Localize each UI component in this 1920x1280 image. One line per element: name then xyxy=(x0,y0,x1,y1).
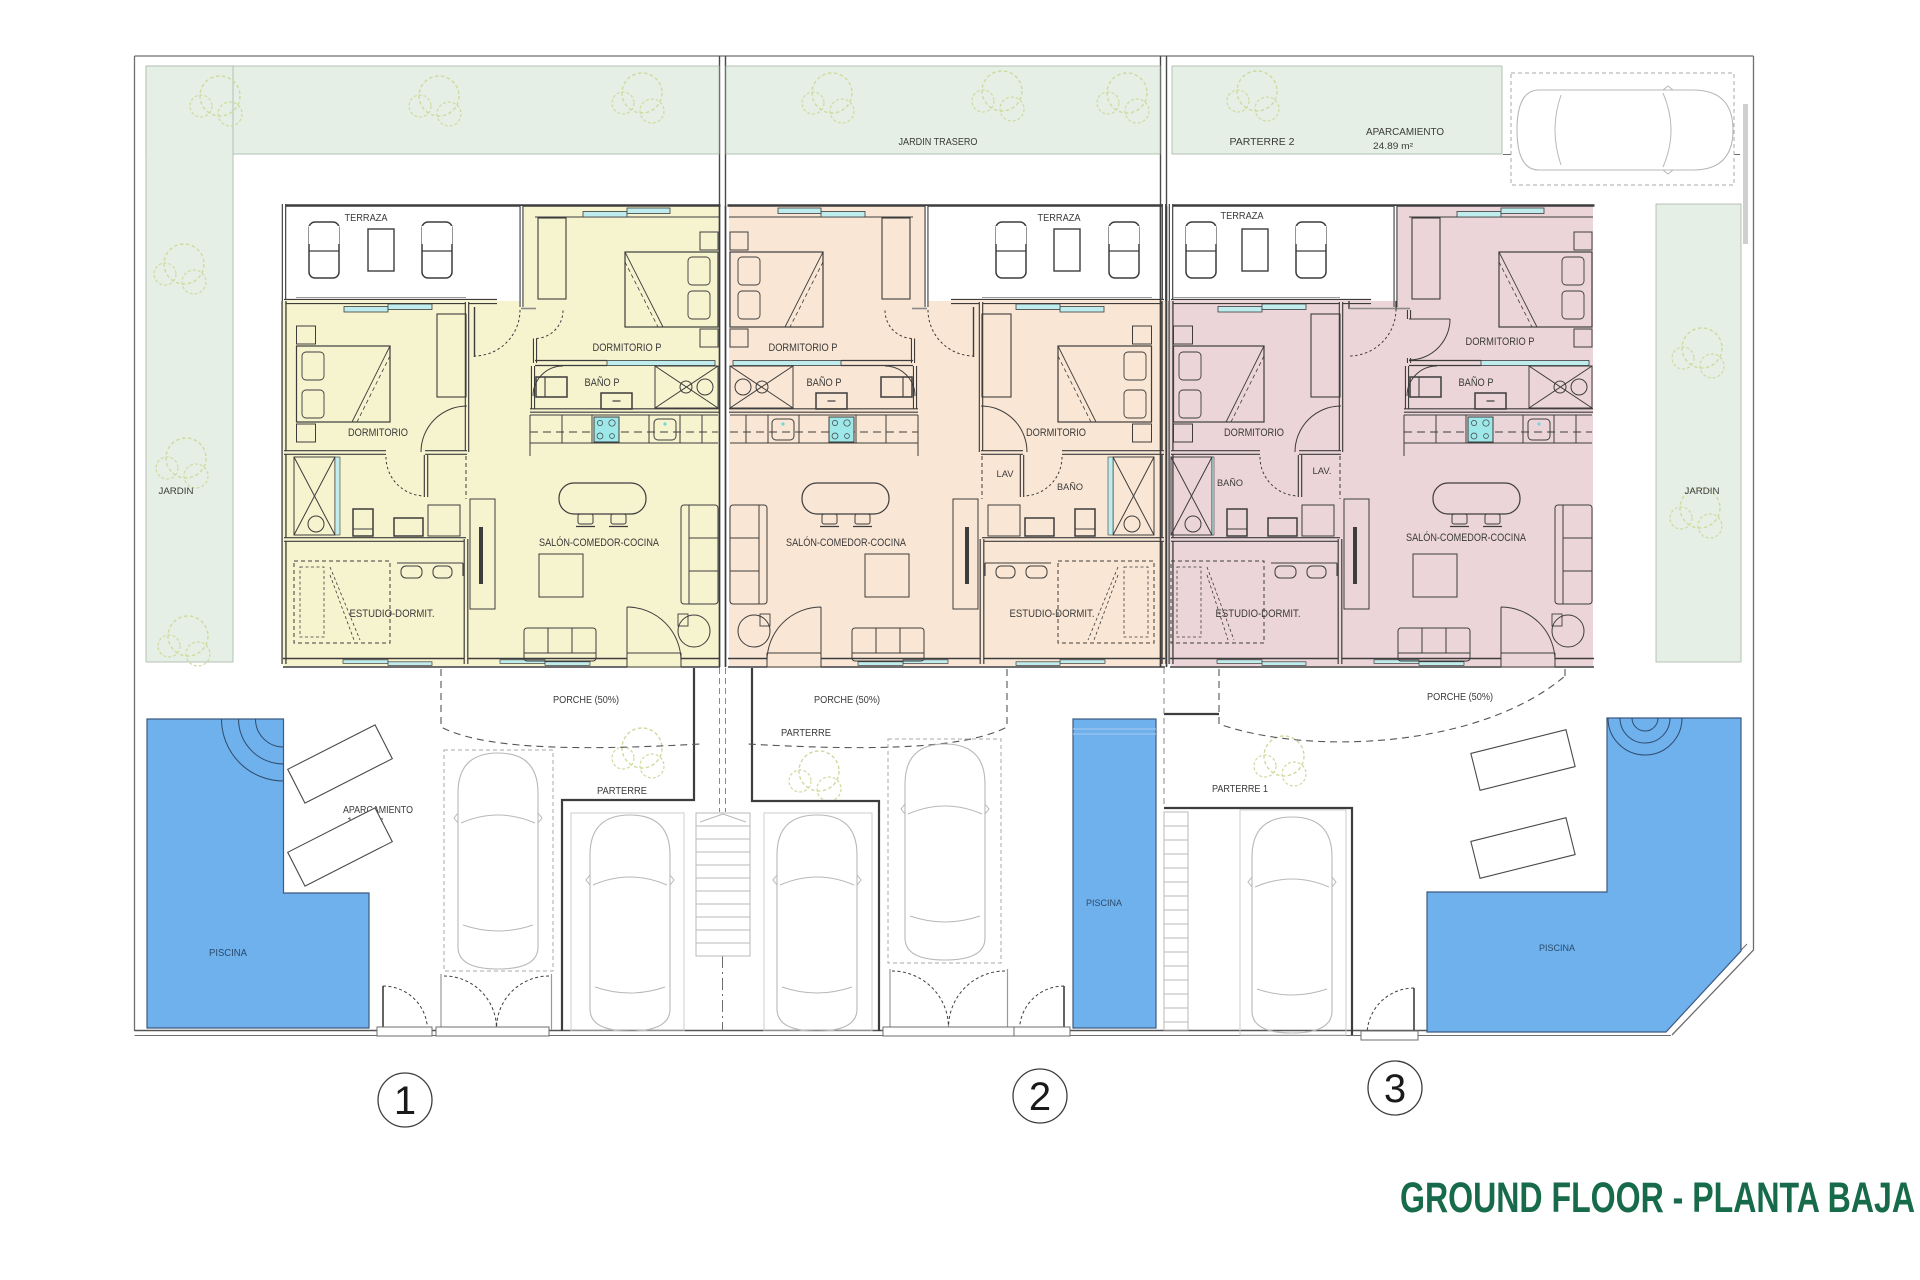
svg-text:BAÑO P: BAÑO P xyxy=(1459,376,1494,389)
svg-text:ESTUDIO-DORMIT.: ESTUDIO-DORMIT. xyxy=(350,608,435,620)
svg-text:DORMITORIO P: DORMITORIO P xyxy=(1466,336,1535,348)
svg-text:DORMITORIO: DORMITORIO xyxy=(1026,427,1086,439)
svg-text:PORCHE (50%): PORCHE (50%) xyxy=(814,695,880,706)
svg-text:TERRAZA: TERRAZA xyxy=(345,213,388,224)
svg-text:PISCINA: PISCINA xyxy=(1086,898,1122,908)
svg-text:BAÑO P: BAÑO P xyxy=(807,376,842,389)
svg-text:2: 2 xyxy=(1029,1075,1051,1119)
svg-text:SALÓN-COMEDOR-COCINA: SALÓN-COMEDOR-COCINA xyxy=(1406,531,1527,544)
svg-text:BAÑO: BAÑO xyxy=(1217,478,1243,488)
svg-text:TERRAZA: TERRAZA xyxy=(1038,213,1081,224)
svg-text:PORCHE (50%): PORCHE (50%) xyxy=(553,695,619,706)
svg-text:1: 1 xyxy=(394,1079,416,1123)
svg-text:TERRAZA: TERRAZA xyxy=(1221,211,1264,222)
svg-text:ESTUDIO-DORMIT.: ESTUDIO-DORMIT. xyxy=(1010,608,1095,620)
svg-text:PARTERRE 2: PARTERRE 2 xyxy=(1230,137,1295,148)
svg-text:JARDIN: JARDIN xyxy=(1685,486,1720,496)
svg-text:3: 3 xyxy=(1384,1067,1406,1111)
svg-text:BAÑO P: BAÑO P xyxy=(585,376,620,389)
svg-text:ESTUDIO-DORMIT.: ESTUDIO-DORMIT. xyxy=(1216,608,1301,620)
svg-text:SALÓN-COMEDOR-COCINA: SALÓN-COMEDOR-COCINA xyxy=(786,536,907,549)
svg-text:PISCINA: PISCINA xyxy=(209,948,247,959)
svg-text:DORMITORIO: DORMITORIO xyxy=(348,427,408,439)
svg-text:PORCHE (50%): PORCHE (50%) xyxy=(1427,692,1493,703)
svg-text:BAÑO: BAÑO xyxy=(1057,482,1083,492)
svg-text:24.89 m²: 24.89 m² xyxy=(1373,141,1413,151)
svg-text:APARCAMIENTO: APARCAMIENTO xyxy=(1366,127,1444,138)
svg-text:PISCINA: PISCINA xyxy=(1539,943,1575,953)
svg-text:JARDIN: JARDIN xyxy=(159,486,194,496)
svg-text:JARDIN TRASERO: JARDIN TRASERO xyxy=(899,137,978,148)
svg-text:SALÓN-COMEDOR-COCINA: SALÓN-COMEDOR-COCINA xyxy=(539,536,660,549)
svg-text:DORMITORIO: DORMITORIO xyxy=(1224,427,1284,439)
svg-text:GROUND FLOOR - PLANTA BAJA: GROUND FLOOR - PLANTA BAJA xyxy=(1400,1174,1915,1222)
svg-text:DORMITORIO P: DORMITORIO P xyxy=(769,342,838,354)
svg-text:DORMITORIO P: DORMITORIO P xyxy=(593,342,662,354)
svg-text:PARTERRE: PARTERRE xyxy=(597,786,647,797)
svg-text:LAV: LAV xyxy=(997,469,1014,479)
svg-text:PARTERRE: PARTERRE xyxy=(781,728,831,739)
svg-text:PARTERRE 1: PARTERRE 1 xyxy=(1212,784,1268,795)
svg-text:LAV.: LAV. xyxy=(1313,466,1332,476)
